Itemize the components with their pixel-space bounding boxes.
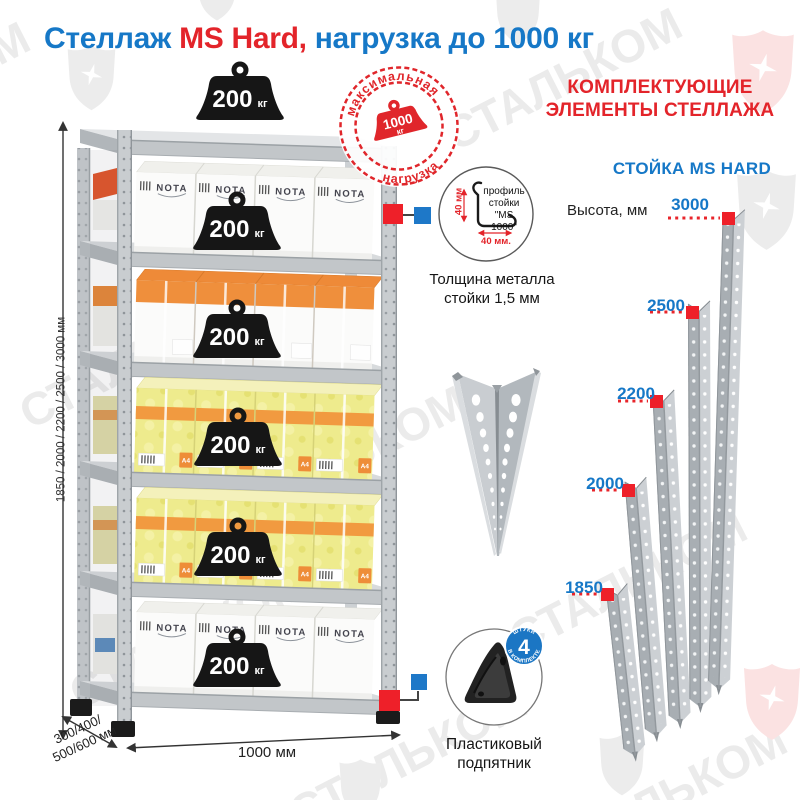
thickness-note-line1: Толщина металла: [413, 271, 571, 290]
shelf-weight-text: 200кг: [192, 326, 282, 354]
post-height-label-2200: 2200: [610, 384, 662, 404]
plastic-foot-label: Пластиковый подпятник: [413, 736, 575, 774]
weight-value: 200: [212, 88, 252, 112]
upright-post-2500: [688, 301, 711, 713]
box-size-label: A4: [182, 457, 191, 464]
weight-unit: кг: [255, 444, 265, 456]
callout-blue-square: [414, 207, 431, 224]
box-brand-label: NOTA: [275, 626, 307, 638]
weight-value: 200: [210, 434, 250, 458]
weight-unit: кг: [254, 336, 264, 348]
box-size-label: A4: [182, 567, 191, 574]
rack-width-label: 1000 мм: [222, 744, 312, 761]
shelf-weight-text: 200кг: [192, 655, 282, 683]
side-boxes: [90, 150, 120, 706]
rack-post-front-left: [117, 130, 132, 722]
weight-value: 200: [209, 218, 249, 242]
weight-unit: кг: [254, 665, 264, 677]
weight-unit: кг: [254, 228, 264, 240]
rack-height-options-label: 1850 / 2000 / 2200 / 2500 / 3000 мм: [56, 285, 71, 535]
plastic-foot-circle: 4 штуки в комплекте: [446, 627, 543, 725]
profile-label-line3: "MS 1000": [481, 210, 527, 234]
post-height-label-3000: 3000: [664, 195, 716, 215]
box-size-label: A4: [361, 573, 370, 580]
weight-unit: кг: [255, 554, 265, 566]
shield-watermark: [340, 760, 382, 800]
page-title: Стеллаж MS Hard, нагрузка до 1000 кг: [44, 22, 594, 56]
rack-foot: [376, 711, 400, 724]
callout-blue-square: [411, 674, 427, 690]
profile-label-line2: стойки: [481, 198, 527, 210]
box-brand-label: NOTA: [156, 623, 188, 635]
infographic-page: { "title": { "part1": "Стеллаж", "part2"…: [0, 0, 800, 800]
shelf-weight-text: 200кг: [193, 544, 283, 572]
title-model: MS Hard,: [179, 22, 307, 55]
rack-post-front-right: [381, 146, 397, 707]
box-size-label: A4: [361, 463, 370, 470]
height-axis-label: Высота, мм: [567, 202, 647, 219]
components-heading-line1: КОМПЛЕКТУЮЩИЕ: [540, 76, 780, 99]
box-size-label: A4: [301, 571, 310, 578]
brand-watermark-text: СТАЛЬКОМ: [0, 11, 38, 175]
post-height-label-2500: 2500: [640, 296, 692, 316]
profile-dim-horizontal: 40 мм.: [476, 236, 516, 247]
profile-diagram-label: профиль стойки "MS 1000": [481, 186, 527, 234]
shelf-weight-text: 200кг: [195, 88, 285, 116]
profile-label-line1: профиль: [481, 186, 527, 198]
title-product: Стеллаж: [44, 22, 171, 55]
box-brand-label: NOTA: [275, 186, 307, 198]
post-section-title: СТОЙКА MS HARD: [572, 159, 800, 179]
shelf-weight-text: 200кг: [192, 218, 282, 246]
shield-watermark: [197, 0, 236, 21]
weight-value: 200: [210, 544, 250, 568]
post-marker-square: [722, 212, 735, 225]
box-brand-label: NOTA: [334, 628, 366, 640]
post-height-label-2000: 2000: [579, 474, 631, 494]
foot-count-value: 4: [518, 636, 530, 659]
post-height-label-1850: 1850: [558, 578, 610, 598]
weight-value: 200: [209, 655, 249, 679]
box-brand-label: NOTA: [334, 188, 366, 200]
weight-unit: кг: [257, 98, 267, 110]
box-brand-label: NOTA: [156, 183, 188, 195]
title-load: нагрузка до 1000 кг: [315, 22, 594, 55]
callout-red-square: [383, 204, 403, 224]
shelf-weight-text: 200кг: [193, 434, 283, 462]
weight-value: 200: [209, 326, 249, 350]
components-heading-line2: ЭЛЕМЕНТЫ СТЕЛЛАЖА: [540, 99, 780, 122]
box-size-label: A4: [301, 461, 310, 468]
plastic-foot-label-line2: подпятник: [413, 755, 575, 774]
upright-post-3000: [708, 209, 745, 695]
components-heading: КОМПЛЕКТУЮЩИЕ ЭЛЕМЕНТЫ СТЕЛЛАЖА: [540, 76, 780, 122]
thickness-note-line2: стойки 1,5 мм: [413, 290, 571, 309]
profile-dim-vertical: 40 мм: [454, 184, 465, 220]
rack-foot: [70, 699, 92, 716]
callout-red-square: [379, 690, 400, 711]
corner-post-3d: [452, 368, 541, 556]
foot-count-badge: 4 штуки в комплекте: [505, 627, 543, 665]
thickness-note: Толщина металла стойки 1,5 мм: [413, 271, 571, 309]
shield-watermark: [737, 170, 796, 250]
plastic-foot-label-line1: Пластиковый: [413, 736, 575, 755]
